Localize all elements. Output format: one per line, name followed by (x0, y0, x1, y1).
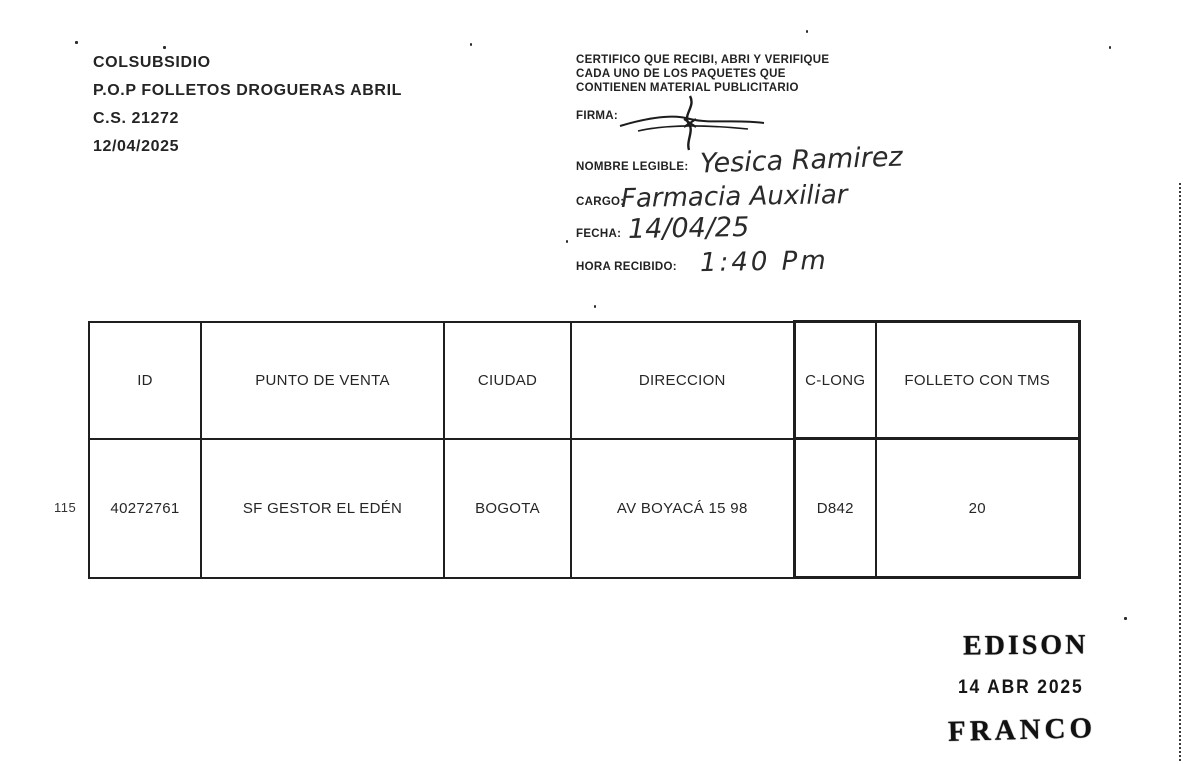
stamp-name-edison: EDISON (963, 629, 1089, 662)
cell-folleto-con-tms: 20 (876, 439, 1079, 578)
cell-id: 40272761 (89, 439, 201, 578)
col-header-ciudad: CIUDAD (444, 322, 571, 439)
noise-speck (470, 43, 472, 46)
cs-number: C.S. 21272 (93, 105, 402, 133)
table-header-row: ID PUNTO DE VENTA CIUDAD DIRECCION C-LON… (89, 322, 1079, 439)
noise-speck (806, 30, 808, 33)
nombre-legible-label: NOMBRE LEGIBLE: (576, 161, 688, 173)
scan-edge-noise (1179, 183, 1181, 761)
cell-ciudad: BOGOTA (444, 439, 571, 578)
stamp-date: 14 ABR 2025 (958, 677, 1084, 699)
certification-text: CERTIFICO QUE RECIBI, ABRI Y VERIFIQUE C… (576, 53, 829, 95)
delivery-table: ID PUNTO DE VENTA CIUDAD DIRECCION C-LON… (88, 320, 1081, 579)
hora-recibido-handwritten: 1:40 Pm (700, 246, 829, 278)
company-name: COLSUBSIDIO (93, 49, 402, 77)
stamp-name-franco: FRANCO (948, 712, 1097, 749)
cargo-handwritten: Farmacia Auxiliar (621, 180, 848, 214)
fecha-handwritten: 14/04/25 (628, 212, 750, 245)
row-index-number: 115 (54, 500, 76, 515)
hora-recibido-label: HORA RECIBIDO: (576, 261, 677, 273)
cargo-label: CARGO: (576, 196, 624, 208)
noise-speck (1109, 46, 1111, 49)
col-header-direccion: DIRECCION (571, 322, 794, 439)
noise-speck (163, 46, 166, 49)
nombre-legible-handwritten: Yesica Ramirez (700, 141, 904, 179)
noise-speck (1124, 617, 1127, 620)
header-date: 12/04/2025 (93, 133, 402, 161)
scanned-delivery-receipt: COLSUBSIDIO P.O.P FOLLETOS DROGUERAS ABR… (0, 0, 1183, 764)
certification-line-2: CADA UNO DE LOS PAQUETES QUE (576, 67, 829, 81)
campaign-title: P.O.P FOLLETOS DROGUERAS ABRIL (93, 77, 402, 105)
cell-punto-de-venta: SF GESTOR EL EDÉN (201, 439, 444, 578)
col-header-c-long: C-LONG (794, 322, 876, 439)
fecha-label: FECHA: (576, 228, 621, 240)
cell-direccion: AV BOYACÁ 15 98 (571, 439, 794, 578)
certification-line-1: CERTIFICO QUE RECIBI, ABRI Y VERIFIQUE (576, 53, 829, 67)
header-left-block: COLSUBSIDIO P.O.P FOLLETOS DROGUERAS ABR… (93, 49, 402, 161)
noise-speck (566, 240, 568, 243)
table-row: 40272761 SF GESTOR EL EDÉN BOGOTA AV BOY… (89, 439, 1079, 578)
col-header-id: ID (89, 322, 201, 439)
cell-c-long: D842 (794, 439, 876, 578)
noise-speck (75, 41, 78, 44)
signature-scribble (612, 93, 772, 153)
noise-speck (594, 305, 596, 308)
col-header-punto-de-venta: PUNTO DE VENTA (201, 322, 444, 439)
col-header-folleto-con-tms: FOLLETO CON TMS (876, 322, 1079, 439)
